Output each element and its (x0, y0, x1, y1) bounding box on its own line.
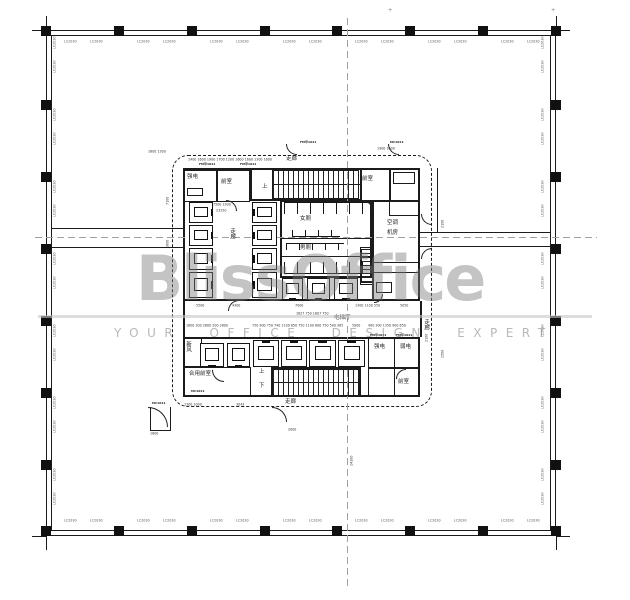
window-tag: LC2030 (428, 40, 441, 43)
elevator-shaft (334, 278, 358, 300)
dim-text: 1800 200 2800 200 2800 (186, 324, 228, 327)
column (551, 100, 561, 110)
window-tag: LC2030 (53, 468, 56, 481)
window-tag: LC2030 (454, 40, 467, 43)
window-tag: LC2030 (527, 40, 540, 43)
floor-plan-drawing: LC2030LC2030LC2030LC2030LC2030LC2030LC20… (0, 0, 630, 600)
door-tag: MC1021 (152, 402, 166, 405)
room-label: 前室 (362, 176, 373, 182)
elevator-door (211, 232, 214, 239)
window-tag: LC2030 (64, 519, 77, 522)
wall-line (280, 238, 372, 239)
elevator-car (257, 253, 272, 264)
elevator-car (286, 283, 298, 294)
dim-text: 4300 (232, 304, 240, 307)
column (478, 526, 488, 536)
window-tag: LC2030 (137, 519, 150, 522)
column (114, 26, 124, 36)
room-label: 前室 (221, 179, 232, 185)
dim-text: 2000 (288, 428, 296, 431)
dim-text: 7500 1900 (213, 203, 231, 206)
dim-text: 5000 (352, 324, 360, 327)
room-label: 新风 (185, 341, 191, 352)
elevator-car (312, 283, 325, 294)
elevator-car (257, 230, 272, 241)
toilet-sinks (292, 230, 340, 237)
wall-line (51, 228, 183, 229)
window-tag: LC2030 (53, 204, 56, 217)
column (551, 388, 561, 398)
elevator-door (347, 340, 356, 343)
column (41, 460, 51, 470)
dim-text: 750 900 750 740 1100 850 750 1100 800 75… (252, 324, 343, 327)
dim-text: 1400 1600 1900 1700 1200 1600 1600 1300 … (188, 158, 272, 161)
window-tag: LC2030 (381, 519, 394, 522)
elevator-car (344, 346, 360, 360)
dim-text: 14100 (350, 456, 353, 466)
column (41, 526, 51, 536)
window-tag: LC2030 (53, 324, 56, 337)
room-label: 男厕 (300, 245, 311, 251)
door-tag: FM甲1021 (240, 163, 256, 166)
wall-line (556, 536, 557, 550)
room-label: 机房 (387, 230, 398, 236)
column (405, 526, 415, 536)
window-tag: LC2030 (454, 519, 467, 522)
elevator-car (205, 348, 219, 360)
elevator-door (208, 365, 216, 368)
column (551, 316, 561, 326)
dim-text: 2100 (441, 220, 444, 228)
elevator-car (315, 346, 331, 360)
elevator-shaft (189, 202, 213, 223)
elevator-door (211, 209, 214, 216)
column (551, 526, 561, 536)
window-tag: LC2030 (163, 40, 176, 43)
dim-text: 3043 (236, 403, 244, 406)
column (41, 388, 51, 398)
column (478, 26, 488, 36)
room-label: 电梯厅 (334, 315, 351, 321)
dim-text: 1300 1100 550 (355, 304, 380, 307)
window-tag: LC2030 (501, 40, 514, 43)
door-tag: FM甲1021 (370, 334, 386, 337)
toilet-urinals (286, 243, 344, 250)
room-label: 合用前室 (189, 371, 211, 377)
window-tag: LC2030 (428, 519, 441, 522)
elevator-shaft (253, 340, 279, 367)
window-tag: LC2030 (53, 348, 56, 361)
wall-line (420, 246, 551, 247)
elevator-door (235, 365, 243, 368)
window-tag: LC2030 (53, 396, 56, 409)
column (114, 526, 124, 536)
wall-line (32, 536, 46, 537)
room-label: 强电 (187, 174, 198, 180)
window-tag: LC2030 (541, 132, 544, 145)
elevator-door (318, 340, 327, 343)
window-tag: LC2030 (210, 519, 223, 522)
window-tag: LC2030 (90, 519, 103, 522)
window-tag: LC2030 (53, 252, 56, 265)
window-tag: LC2030 (527, 519, 540, 522)
room-label: 上 (259, 369, 265, 375)
column (187, 526, 197, 536)
wall-line (280, 256, 372, 257)
window-tag: LC2030 (53, 36, 56, 49)
dim-text: 1600 (166, 240, 169, 248)
registration-mark: + (388, 8, 392, 13)
elevator-car (339, 283, 353, 294)
elevator-door (289, 298, 296, 301)
window-tag: LC2030 (53, 492, 56, 505)
column (41, 172, 51, 182)
window-tag: LC2030 (283, 519, 296, 522)
column (551, 244, 561, 254)
window-tag: LC2030 (541, 60, 544, 73)
grid-centerline-horizontal (35, 237, 597, 238)
window-tag: LC2030 (541, 180, 544, 193)
stair-bottom (272, 369, 359, 396)
window-tag: LC2030 (541, 276, 544, 289)
dim-text: 1627 750 1607 750 (296, 312, 329, 315)
elevator-shaft (309, 340, 336, 367)
dim-text: 5500 (196, 304, 204, 307)
column (260, 26, 270, 36)
elevator-shaft (189, 225, 213, 246)
stair-top (272, 170, 359, 199)
elevator-shaft (189, 272, 213, 298)
elevator-car (232, 348, 245, 360)
room-label: 走廊 (229, 228, 235, 239)
window-tag: LC2030 (53, 420, 56, 433)
elevator-car (258, 346, 273, 360)
elevator-door (252, 232, 255, 239)
dim-text: 1600 1300 (148, 150, 166, 153)
window-tag: LC2030 (541, 468, 544, 481)
elevator-shaft (252, 202, 277, 223)
elevator-shaft (200, 343, 224, 367)
window-tag: LC2030 (53, 132, 56, 145)
column (551, 172, 561, 182)
column (551, 460, 561, 470)
dim-text: 23250 (216, 209, 226, 212)
elevator-shaft (282, 278, 303, 300)
wall-line (556, 536, 570, 537)
elevator-shaft (252, 272, 277, 298)
column (41, 316, 51, 326)
wall-line (170, 407, 171, 431)
room-label: 空调 (387, 220, 398, 226)
window-tag: LC2030 (541, 36, 544, 49)
column (41, 100, 51, 110)
window-tag: LC2030 (53, 276, 56, 289)
room-label: 强电 (374, 344, 385, 350)
column (260, 526, 270, 536)
elevator-door (262, 340, 271, 343)
elevator-door (252, 209, 255, 216)
window-tag: LC2030 (541, 420, 544, 433)
window-tag: LC2030 (309, 519, 322, 522)
dim-text: 1500 (441, 350, 444, 358)
dim-text: 1900 1600 (377, 147, 395, 150)
window-tag: LC2030 (283, 40, 296, 43)
dim-text: 1800 (150, 432, 158, 435)
wall-line (420, 232, 551, 233)
door-tag: FM甲1021 (300, 141, 316, 144)
column (41, 244, 51, 254)
window-tag: LC2030 (53, 108, 56, 121)
room-label: 弱电 (400, 344, 411, 350)
elevator-door (252, 281, 255, 290)
wall-line (51, 247, 183, 248)
elevator-door (211, 255, 214, 262)
elevator-door (290, 340, 299, 343)
elevator-shaft (338, 340, 365, 367)
elevator-door (315, 298, 323, 301)
dim-text: 7100 (166, 197, 169, 205)
window-tag: LC2030 (541, 348, 544, 361)
window-tag: LC2030 (541, 108, 544, 121)
window-tag: LC2030 (236, 519, 249, 522)
door-tag: MC1021 (191, 390, 205, 393)
window-tag: LC2030 (501, 519, 514, 522)
room-label: 走廊 (423, 319, 429, 330)
window-tag: LC2030 (355, 519, 368, 522)
column (551, 26, 561, 36)
elevator-car (194, 278, 208, 291)
window-tag: LC2030 (53, 180, 56, 193)
elevator-car (286, 346, 301, 360)
column (405, 26, 415, 36)
column (332, 26, 342, 36)
elevator-shaft (307, 278, 330, 300)
elevator-car (194, 253, 208, 264)
wall-line (420, 301, 422, 337)
elevator-door (252, 255, 255, 262)
registration-mark: + (551, 8, 555, 13)
door-tag: MC1021 (390, 141, 404, 144)
window-tag: LC2030 (236, 40, 249, 43)
window-tag: LC2030 (90, 40, 103, 43)
elevator-shaft (281, 340, 307, 367)
dim-text: 7000 (295, 304, 303, 307)
elevator-door (342, 298, 350, 301)
toilet-stalls-women (284, 202, 370, 214)
wall-line (46, 536, 47, 550)
wall-line (374, 262, 418, 263)
window-tag: LC2030 (541, 204, 544, 217)
dim-text: 1300 1000 (184, 403, 202, 406)
elevator-shaft (189, 248, 213, 270)
dim-text: 2100 (425, 334, 428, 342)
window-tag: LC2030 (137, 40, 150, 43)
window-tag: LC2030 (309, 40, 322, 43)
floor-plan-canvas: LC2030LC2030LC2030LC2030LC2030LC2030LC20… (0, 0, 630, 600)
window-tag: LC2030 (355, 40, 368, 43)
window-tag: LC2030 (210, 40, 223, 43)
window-tag: LC2030 (53, 60, 56, 73)
elevator-car (257, 207, 272, 218)
dim-text: 400 300 1350 900 650 (368, 324, 406, 327)
door-tag: FM甲1021 (396, 334, 412, 337)
elevator-car (194, 207, 208, 218)
window-tag: LC2030 (64, 40, 77, 43)
door-tag: FM甲1021 (199, 163, 215, 166)
window-tag: LC2030 (541, 396, 544, 409)
room-label: 下 (259, 383, 265, 389)
window-tag: LC2030 (541, 324, 544, 337)
room-label: 女厕 (300, 216, 311, 222)
room-label: 走廊 (286, 156, 297, 162)
room-label: 前室 (398, 379, 409, 385)
column (187, 26, 197, 36)
toilet-stalls-men (284, 262, 370, 274)
elevator-car (257, 278, 272, 291)
elevator-car (194, 230, 208, 241)
wall-line (437, 168, 438, 233)
room-label: 走廊 (285, 399, 296, 405)
window-tag: LC2030 (541, 252, 544, 265)
grid-centerline-vertical (347, 18, 348, 588)
elevator-shaft (227, 343, 250, 367)
wall-line (183, 301, 185, 337)
column (41, 26, 51, 36)
column (332, 526, 342, 536)
window-tag: LC2030 (381, 40, 394, 43)
window-tag: LC2030 (541, 492, 544, 505)
elevator-shaft (252, 225, 277, 246)
room-label: 上 (262, 184, 268, 190)
elevator-shaft (252, 248, 277, 270)
elevator-door (211, 281, 214, 290)
window-tag: LC2030 (163, 519, 176, 522)
dim-text: 5050 (400, 304, 408, 307)
wall-line (374, 272, 418, 273)
